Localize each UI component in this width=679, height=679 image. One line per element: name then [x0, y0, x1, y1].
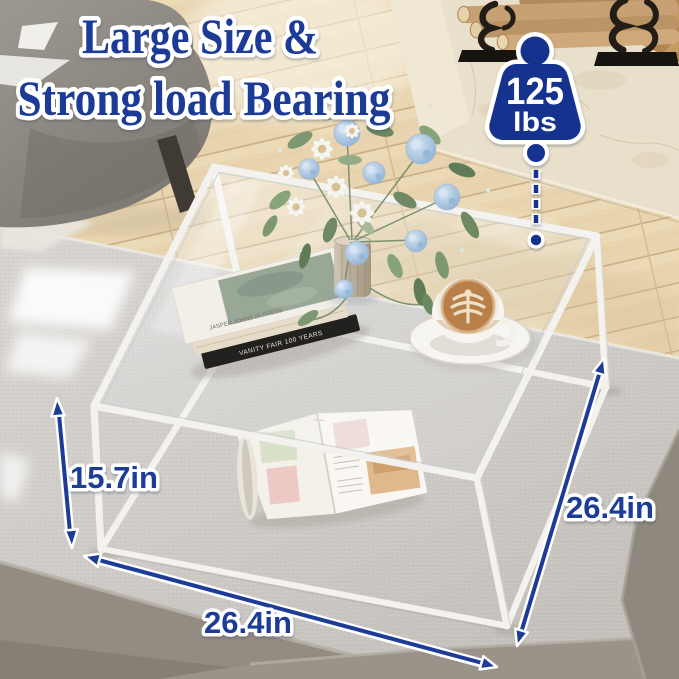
scene-svg: VANITY FAIR 100 YEARS JASPER JOHNS IN PR… — [0, 0, 679, 679]
product-image: VANITY FAIR 100 YEARS JASPER JOHNS IN PR… — [0, 0, 679, 679]
headline-line1: Large Size & — [82, 8, 318, 64]
load-unit: lbs — [513, 107, 557, 137]
load-end-dot — [529, 233, 543, 247]
headline-line2: Strong load Bearing — [18, 70, 391, 126]
width-label: 26.4in — [204, 605, 292, 640]
load-point-dot — [525, 142, 547, 164]
depth-label: 26.4in — [566, 490, 654, 525]
height-label: 15.7in — [70, 460, 158, 495]
